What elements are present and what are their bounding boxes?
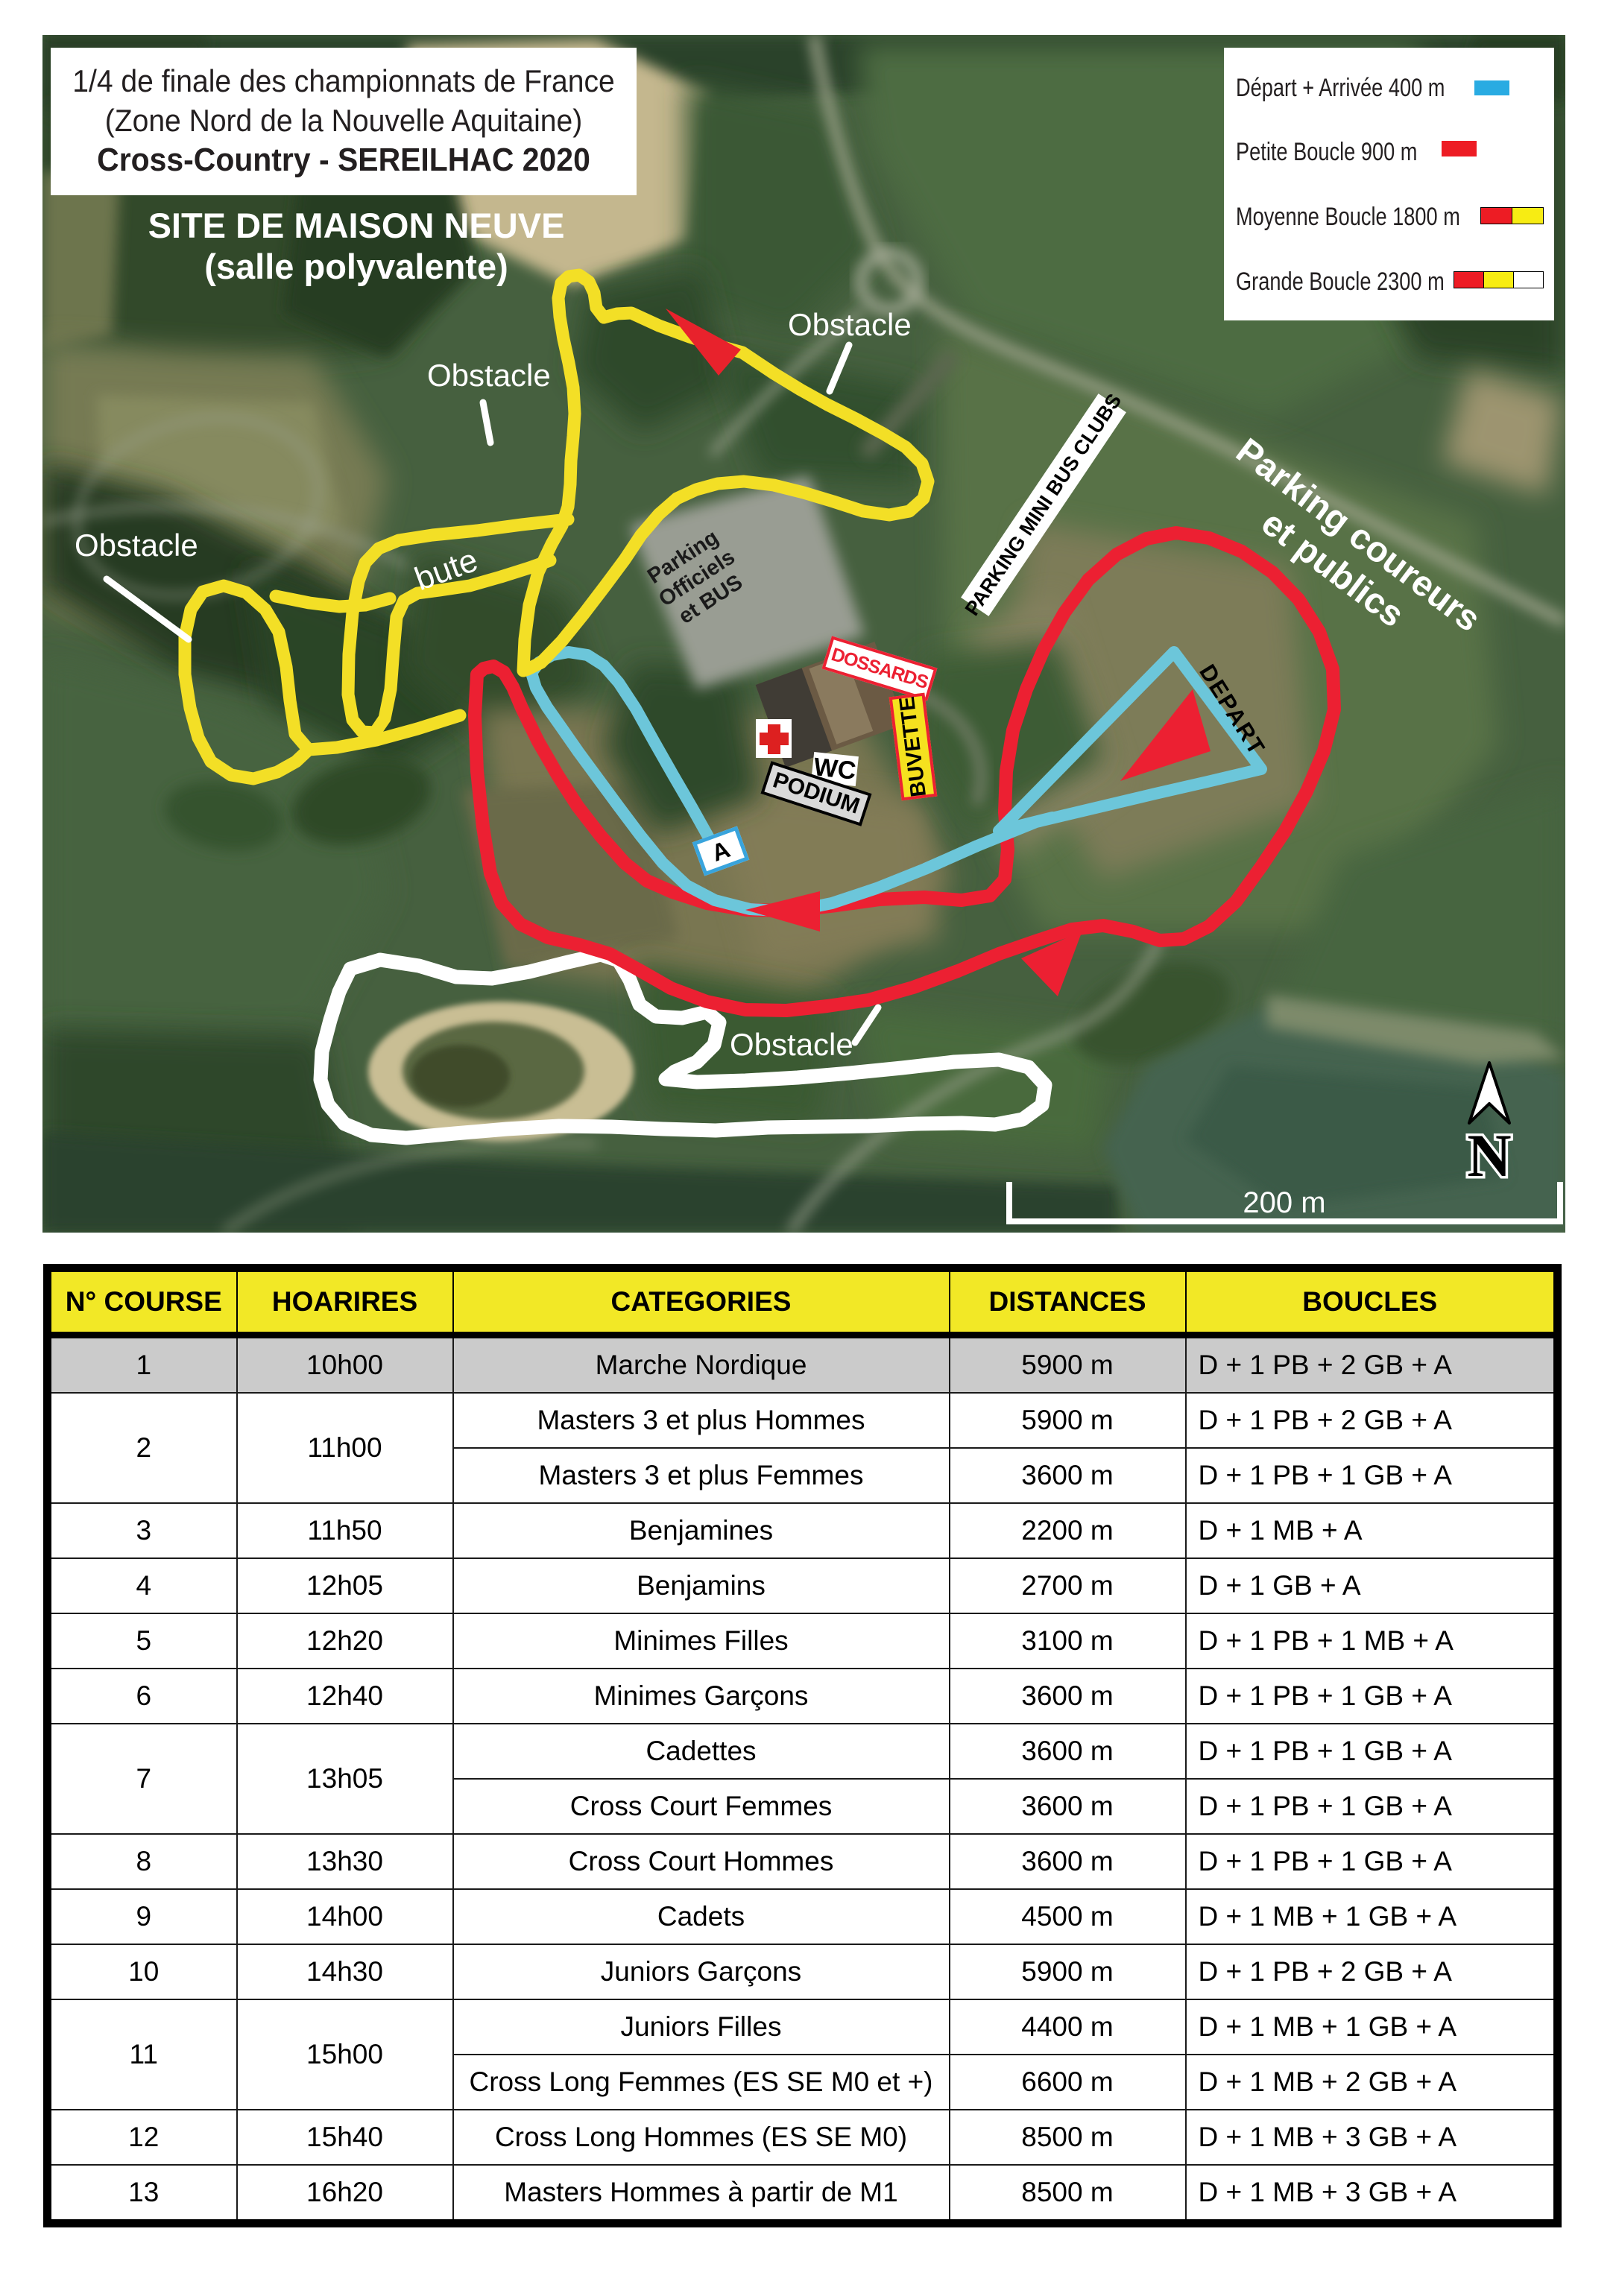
svg-text:N: N [1467, 1122, 1511, 1189]
svg-text:200 m: 200 m [1243, 1186, 1325, 1219]
